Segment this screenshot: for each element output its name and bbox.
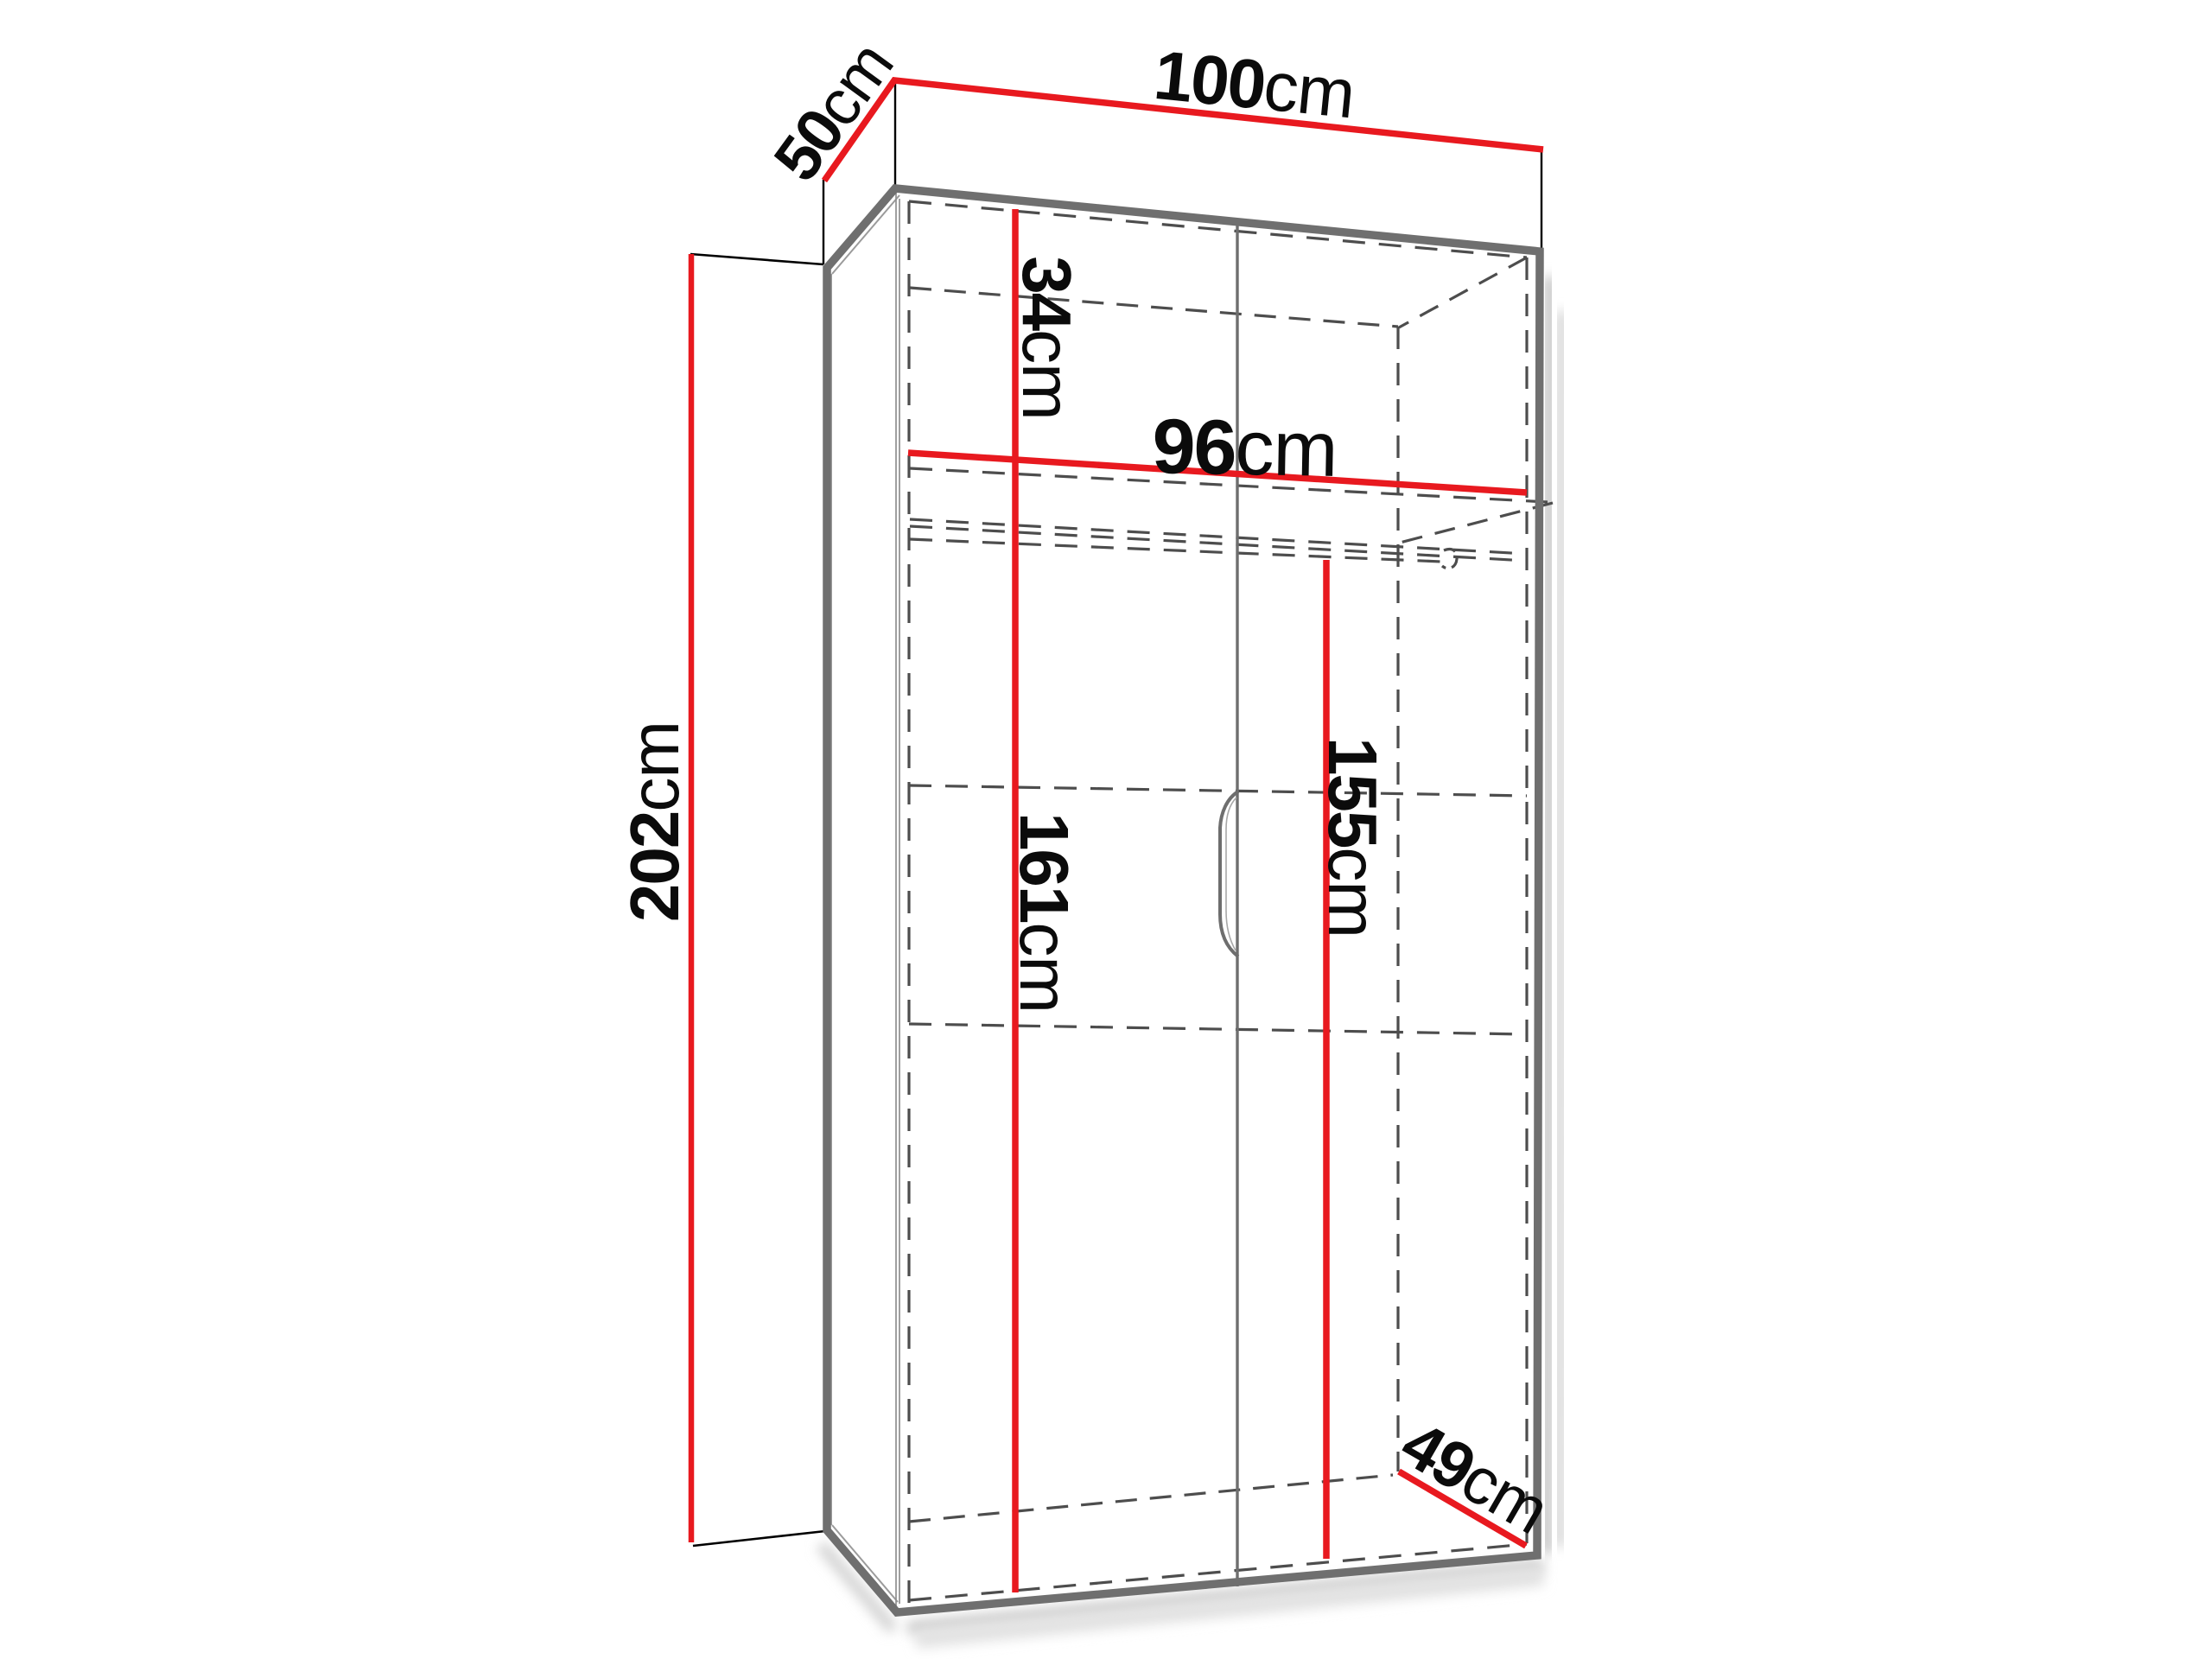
svg-text:50cm: 50cm [760,29,906,194]
svg-text:202cm: 202cm [616,721,693,922]
svg-text:155cm: 155cm [1314,737,1391,938]
svg-text:34cm: 34cm [1008,256,1085,420]
svg-text:96cm: 96cm [1152,404,1338,493]
svg-text:100cm: 100cm [1151,36,1358,133]
svg-text:161cm: 161cm [1006,812,1083,1013]
